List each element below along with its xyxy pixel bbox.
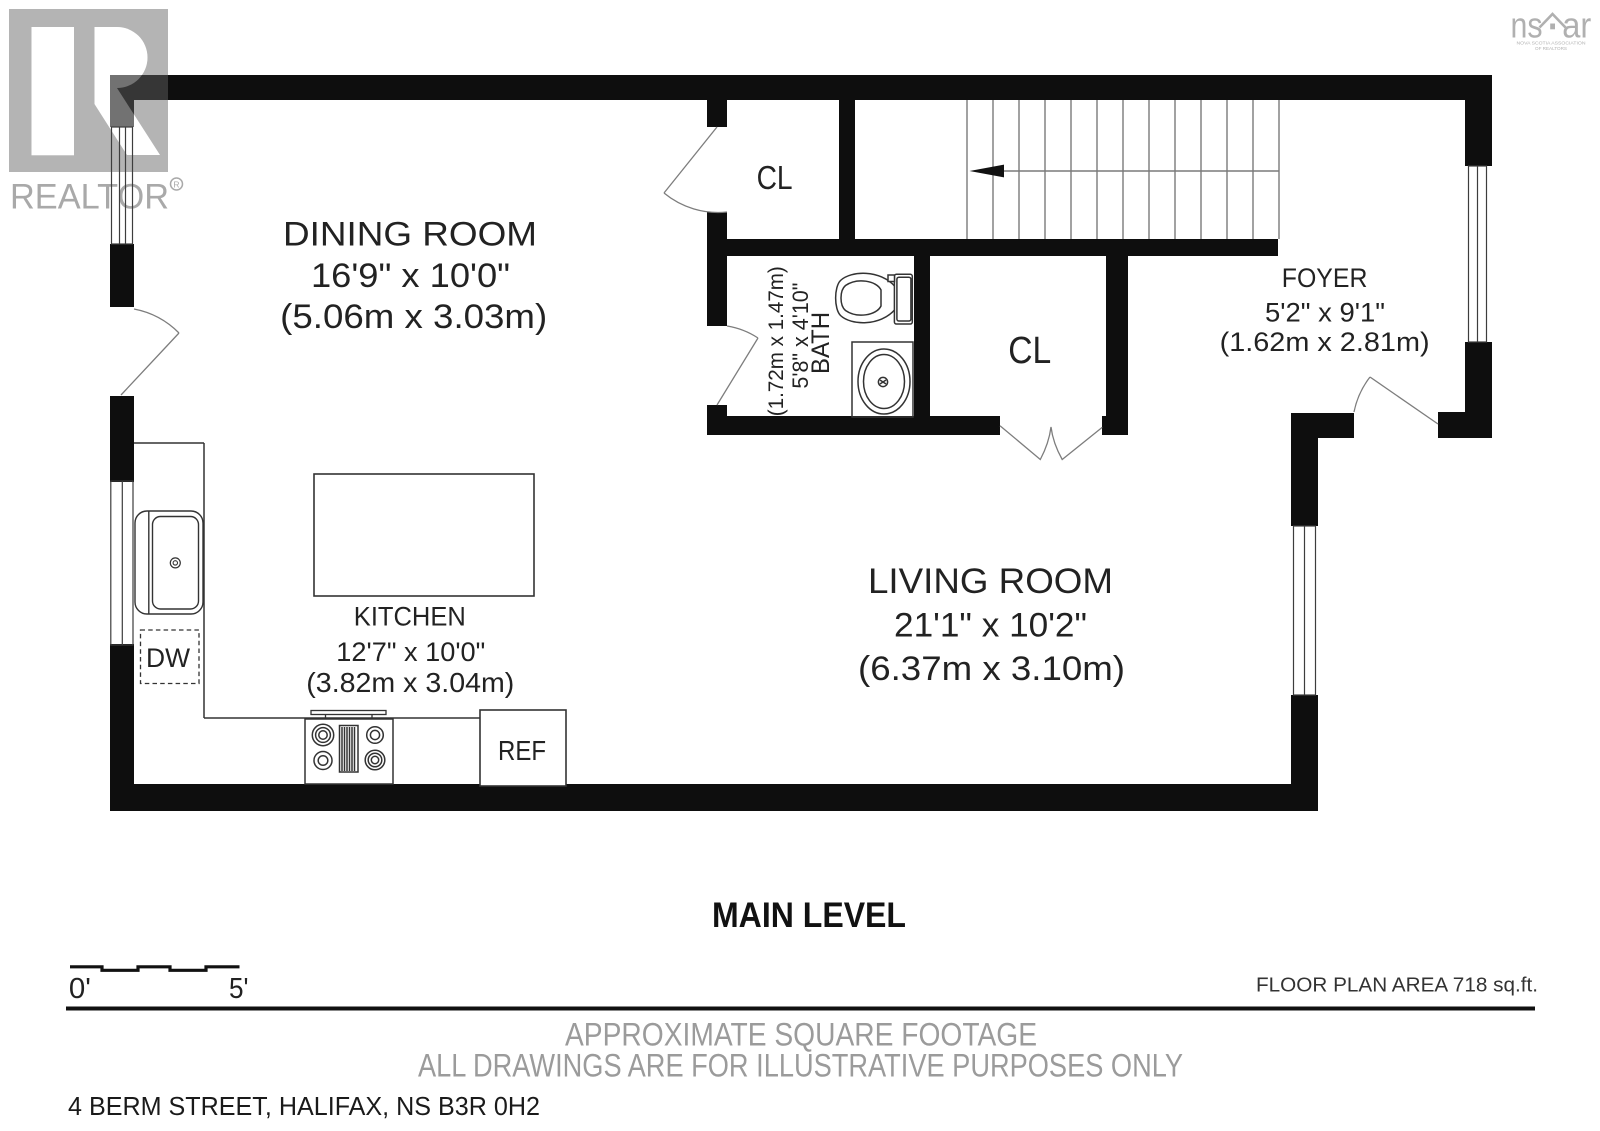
svg-text:R: R bbox=[173, 180, 179, 190]
svg-text:(3.82m x 3.04m): (3.82m x 3.04m) bbox=[306, 667, 514, 698]
svg-text:ALL DRAWINGS ARE FOR ILLUSTRAT: ALL DRAWINGS ARE FOR ILLUSTRATIVE PURPOS… bbox=[418, 1048, 1183, 1084]
svg-text:(1.62m x 2.81m): (1.62m x 2.81m) bbox=[1220, 327, 1430, 357]
svg-text:CL: CL bbox=[1008, 330, 1051, 372]
svg-text:0': 0' bbox=[69, 973, 91, 1005]
svg-text:ns: ns bbox=[1511, 5, 1543, 46]
svg-text:(1.72m x 1.47m): (1.72m x 1.47m) bbox=[765, 266, 788, 416]
svg-text:OF REALTORS: OF REALTORS bbox=[1535, 46, 1567, 51]
svg-text:16'9" x 10'0": 16'9" x 10'0" bbox=[311, 257, 510, 295]
svg-text:(6.37m x 3.10m): (6.37m x 3.10m) bbox=[858, 650, 1125, 688]
svg-text:ar: ar bbox=[1562, 5, 1591, 46]
svg-text:5'2" x 9'1": 5'2" x 9'1" bbox=[1265, 298, 1385, 328]
svg-text:LIVING ROOM: LIVING ROOM bbox=[868, 562, 1113, 601]
svg-text:4 BERM STREET, HALIFAX, NS B3R: 4 BERM STREET, HALIFAX, NS B3R 0H2 bbox=[68, 1091, 540, 1121]
svg-text:DW: DW bbox=[146, 643, 191, 673]
svg-text:MAIN LEVEL: MAIN LEVEL bbox=[712, 896, 906, 935]
svg-text:(5.06m x 3.03m): (5.06m x 3.03m) bbox=[280, 298, 547, 336]
svg-text:DINING ROOM: DINING ROOM bbox=[283, 216, 537, 254]
svg-text:5'8" x 4'10": 5'8" x 4'10" bbox=[788, 283, 813, 389]
svg-text:FOYER: FOYER bbox=[1282, 263, 1368, 293]
svg-text:NOVA SCOTIA ASSOCIATION: NOVA SCOTIA ASSOCIATION bbox=[1517, 41, 1586, 46]
svg-text:5': 5' bbox=[229, 973, 249, 1005]
svg-text:REF: REF bbox=[498, 735, 546, 766]
svg-text:KITCHEN: KITCHEN bbox=[354, 602, 466, 632]
svg-text:REALTOR: REALTOR bbox=[10, 178, 169, 217]
svg-text:FLOOR PLAN AREA 718 sq.ft.: FLOOR PLAN AREA 718 sq.ft. bbox=[1256, 975, 1538, 997]
svg-text:CL: CL bbox=[757, 159, 793, 196]
svg-text:21'1" x 10'2": 21'1" x 10'2" bbox=[894, 607, 1087, 645]
svg-text:12'7" x 10'0": 12'7" x 10'0" bbox=[336, 637, 485, 667]
